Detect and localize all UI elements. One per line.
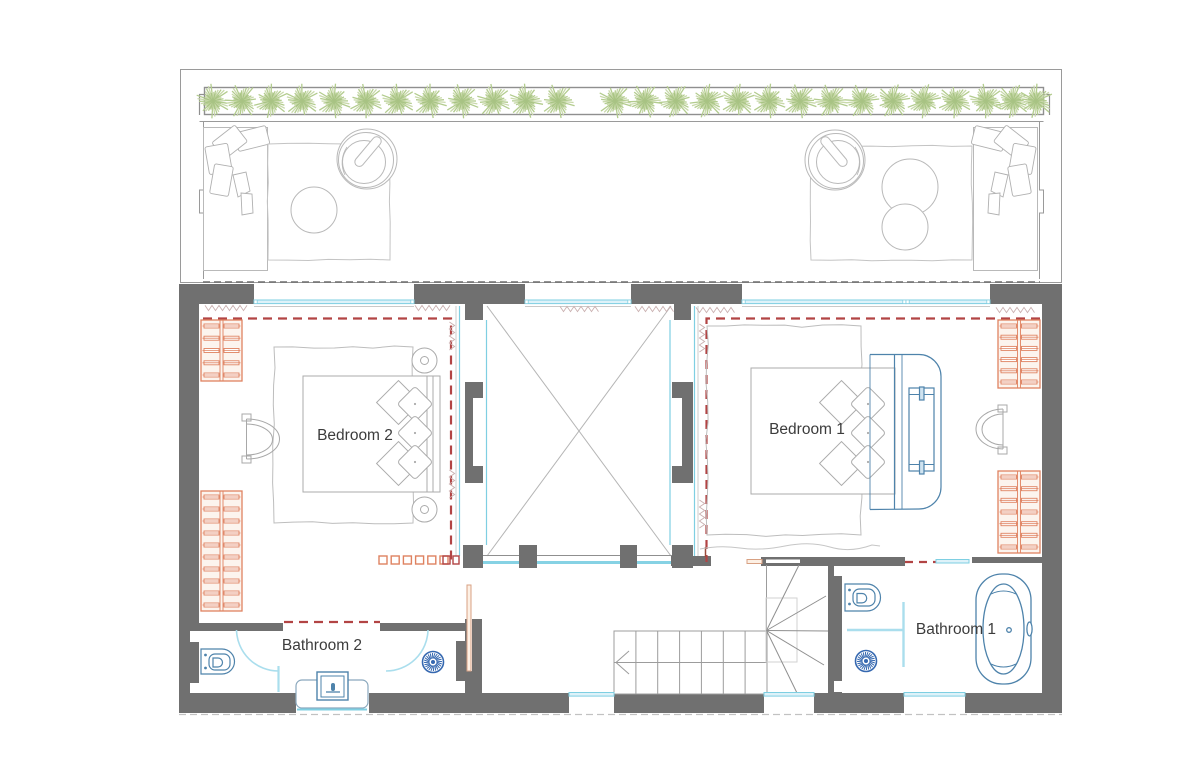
svg-text:Bathroom 2: Bathroom 2 <box>282 637 362 654</box>
svg-text:Bedroom 1: Bedroom 1 <box>769 421 845 438</box>
svg-text:Bedroom 2: Bedroom 2 <box>317 427 393 444</box>
svg-text:Bathroom 1: Bathroom 1 <box>916 621 996 638</box>
